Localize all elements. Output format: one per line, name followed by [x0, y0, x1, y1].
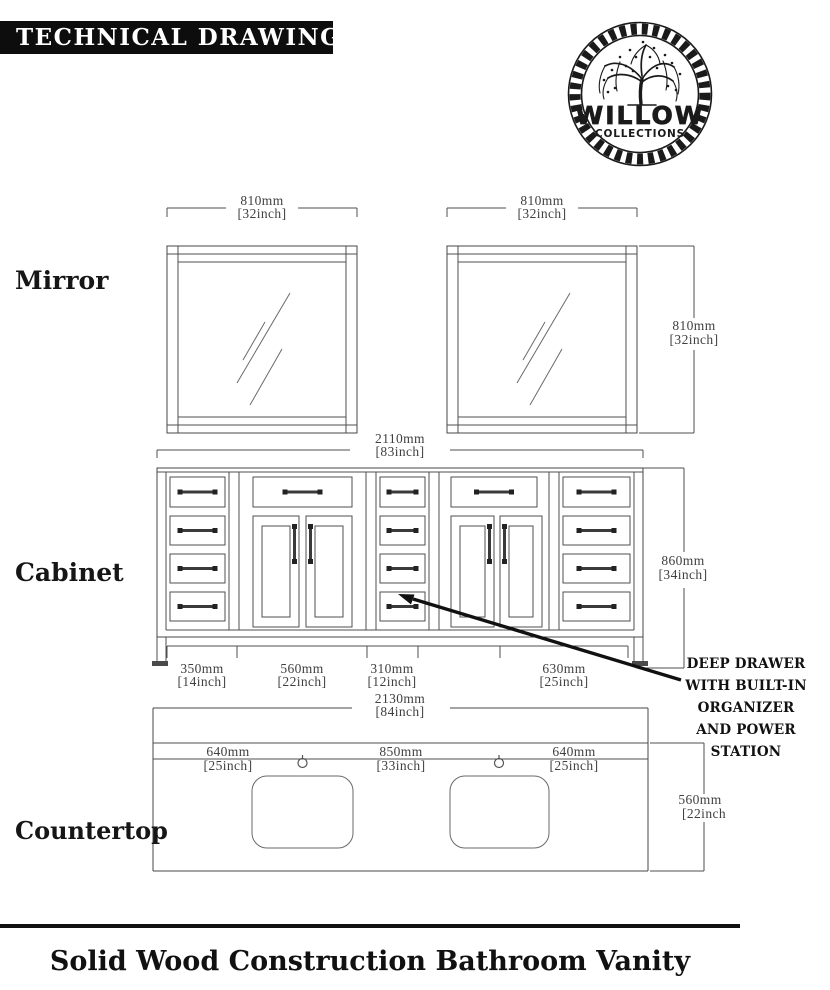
- mirror-reflection-icon: [517, 293, 570, 405]
- door-panel: [460, 526, 485, 617]
- cabinet-drawing: [152, 468, 648, 666]
- door-panel: [262, 526, 290, 617]
- dim-cabinet-height-in: [34inch]: [659, 567, 708, 582]
- drawer-handle-icon: [178, 528, 218, 533]
- technical-drawing-page: WILLOW COLLECTIONS: [0, 0, 830, 990]
- page-title: TECHNICAL DRAWING: [16, 24, 341, 51]
- cabinet-door: [306, 516, 352, 627]
- door-handle-icon: [502, 524, 507, 564]
- mirror-left-drawing: [167, 246, 357, 433]
- drawer-handle-icon: [577, 604, 617, 609]
- willow-tree-icon: [599, 41, 681, 105]
- footer-caption: Solid Wood Construction Bathroom Vanity: [0, 946, 740, 977]
- mirror-reflection-icon: [237, 293, 290, 405]
- drawer-bank-right: [563, 477, 630, 621]
- dim-cabinet-segments-line: [167, 646, 628, 658]
- drawer-handle-icon: [178, 489, 218, 494]
- cabinet-foot: [152, 661, 168, 666]
- callout-line: AND POWER STATION: [660, 719, 830, 763]
- drawer-handle-icon: [577, 566, 617, 571]
- drawer-handle-icon: [387, 528, 419, 533]
- faucet-hole-icon: [495, 755, 504, 768]
- footer-divider: [0, 924, 740, 928]
- door-handle-icon: [292, 524, 297, 564]
- cabinet-door: [253, 516, 299, 627]
- countertop-drawing: [153, 708, 648, 871]
- dim-mirror-right-width-in: [32inch]: [518, 206, 567, 221]
- dim-counter-center-mm: 850mm: [379, 744, 422, 759]
- drawer-handle-icon: [178, 604, 218, 609]
- drawer-handle-icon: [577, 528, 617, 533]
- cabinet-door: [500, 516, 542, 627]
- section-label-mirror: Mirror: [15, 266, 108, 295]
- dim-cab-doors-in: [22inch]: [278, 674, 327, 689]
- drawer-handle-icon: [387, 604, 419, 609]
- dim-mirror-height-mm: 810mm: [672, 318, 715, 333]
- door-handle-icon: [308, 524, 313, 564]
- faucet-hole-icon: [298, 755, 307, 768]
- drawer-handle-icon: [283, 489, 323, 494]
- dim-cab-right-in: [25inch]: [540, 674, 589, 689]
- door-section-left: [253, 477, 352, 627]
- logo-brand-text: WILLOW: [576, 101, 705, 130]
- drawer-handle-icon: [387, 489, 419, 494]
- drawer-handle-icon: [577, 489, 617, 494]
- dim-counter-center-in: [33inch]: [377, 758, 426, 773]
- mirror-right-drawing: [447, 246, 637, 433]
- callout-line: WITH BUILT-IN: [660, 675, 830, 697]
- section-label-cabinet: Cabinet: [15, 558, 124, 587]
- dim-cabinet-height-mm: 860mm: [661, 553, 704, 568]
- title-bar: TECHNICAL DRAWING: [0, 21, 333, 54]
- dim-counter-left-mm: 640mm: [206, 744, 249, 759]
- dim-mirror-height-in: [32inch]: [670, 332, 719, 347]
- dim-mirror-left-width-in: [32inch]: [238, 206, 287, 221]
- door-section-right: [451, 477, 542, 627]
- door-handle-icon: [487, 524, 492, 564]
- dim-cab-left-in: [14inch]: [178, 674, 227, 689]
- drawer-handle-icon: [474, 489, 514, 494]
- drawer-handle-icon: [178, 566, 218, 571]
- drawer-handle-icon: [387, 566, 419, 571]
- sink-basin: [450, 776, 549, 848]
- brand-logo: WILLOW COLLECTIONS: [569, 23, 712, 166]
- callout-deep-drawer: DEEP DRAWER WITH BUILT-IN ORGANIZER AND …: [660, 653, 830, 763]
- dim-counter-depth-in: [22inch: [682, 806, 726, 821]
- logo-subbrand-text: COLLECTIONS: [595, 128, 685, 140]
- dim-counter-left-in: [25inch]: [204, 758, 253, 773]
- dim-counter-right-mm: 640mm: [552, 744, 595, 759]
- section-label-countertop: Countertop: [15, 816, 168, 845]
- dim-counter-right-in: [25inch]: [550, 758, 599, 773]
- drawer-bank-left: [170, 477, 225, 621]
- dim-counter-width-in: [84inch]: [376, 704, 425, 719]
- door-panel: [509, 526, 533, 617]
- cabinet-door: [451, 516, 494, 627]
- callout-line: ORGANIZER: [660, 697, 830, 719]
- dim-counter-depth-mm: 560mm: [678, 792, 721, 807]
- callout-line: DEEP DRAWER: [660, 653, 830, 675]
- dim-cab-middle-in: [12inch]: [368, 674, 417, 689]
- door-panel: [315, 526, 343, 617]
- dim-cabinet-width-in: [83inch]: [376, 444, 425, 459]
- sink-basin: [252, 776, 353, 848]
